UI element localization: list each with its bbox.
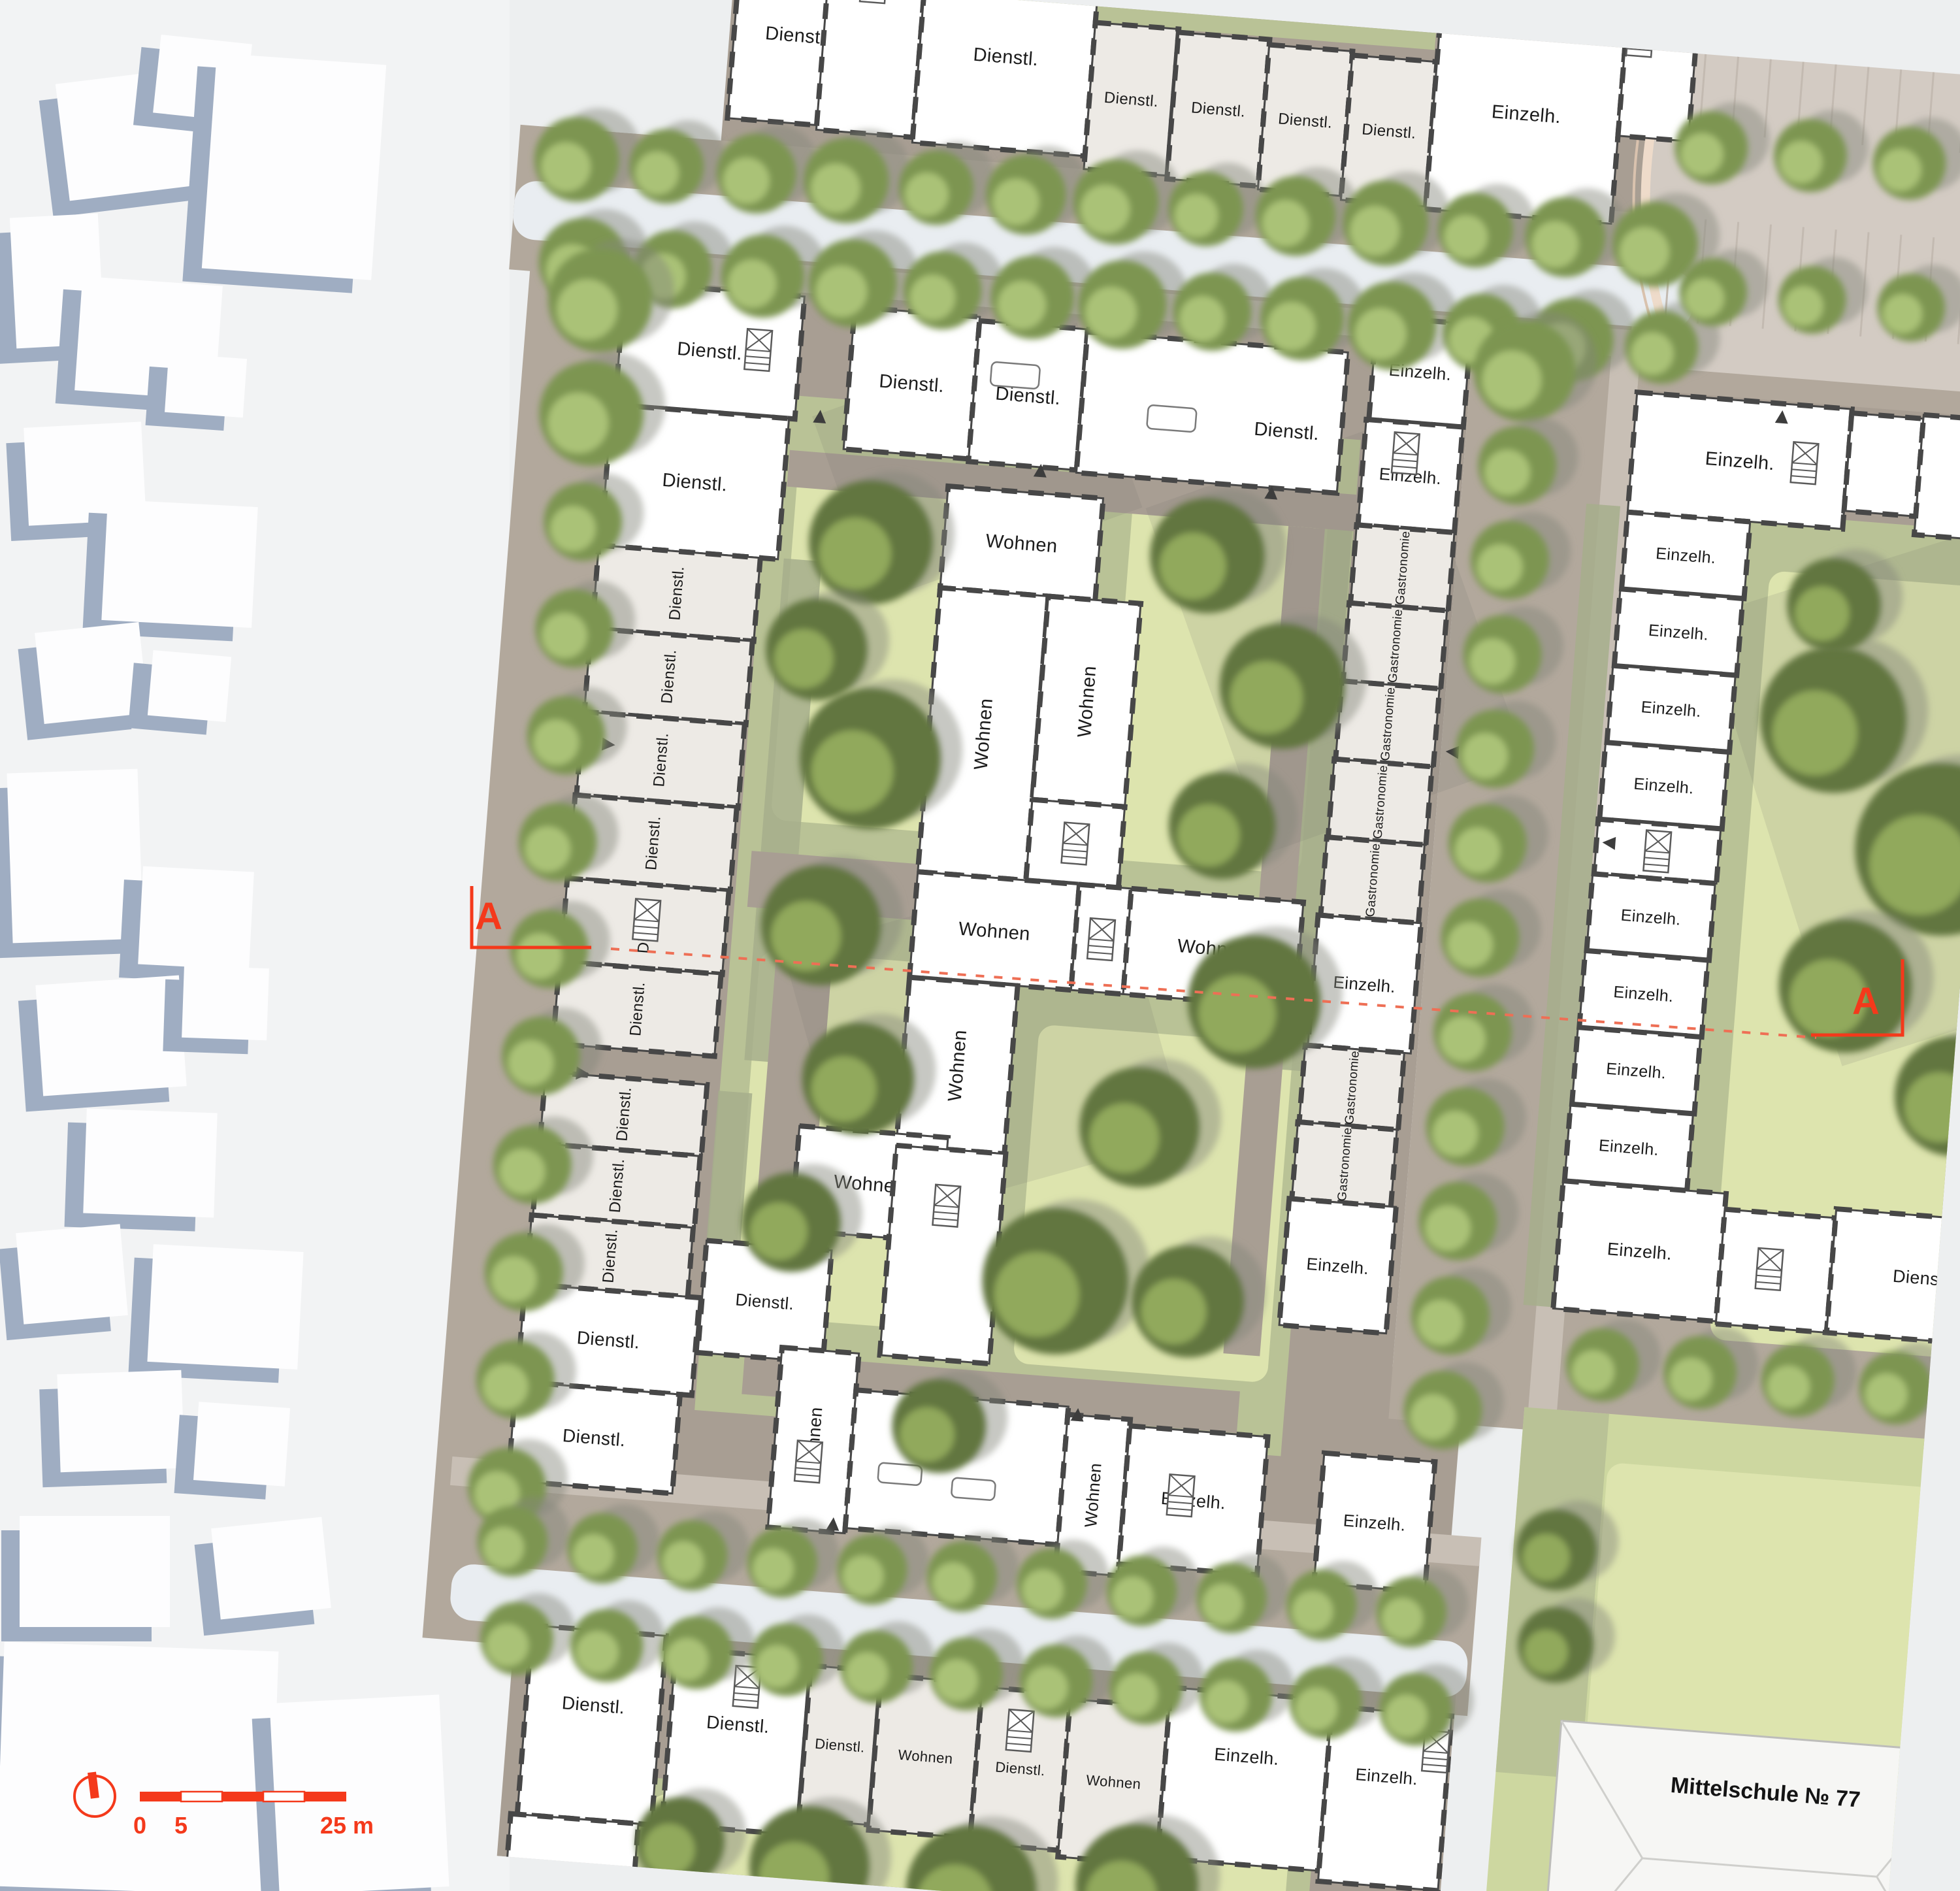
scale-label-25m: 25 m xyxy=(320,1812,374,1839)
section-line xyxy=(611,949,1816,1038)
site-plan: Mittelschule № 77Dienstl.Dienstl.Dienstl… xyxy=(0,0,1960,1891)
scale-label-5: 5 xyxy=(174,1812,188,1839)
scale-bar: 0 5 25 m xyxy=(133,1792,374,1839)
scale-label-0: 0 xyxy=(133,1812,146,1839)
section-marker-right-label: A xyxy=(1852,980,1880,1023)
annotation-layer: A A 0 5 25 m xyxy=(0,0,1960,1891)
north-arrow-icon xyxy=(74,1771,115,1817)
section-marker-left-label: A xyxy=(475,895,502,938)
